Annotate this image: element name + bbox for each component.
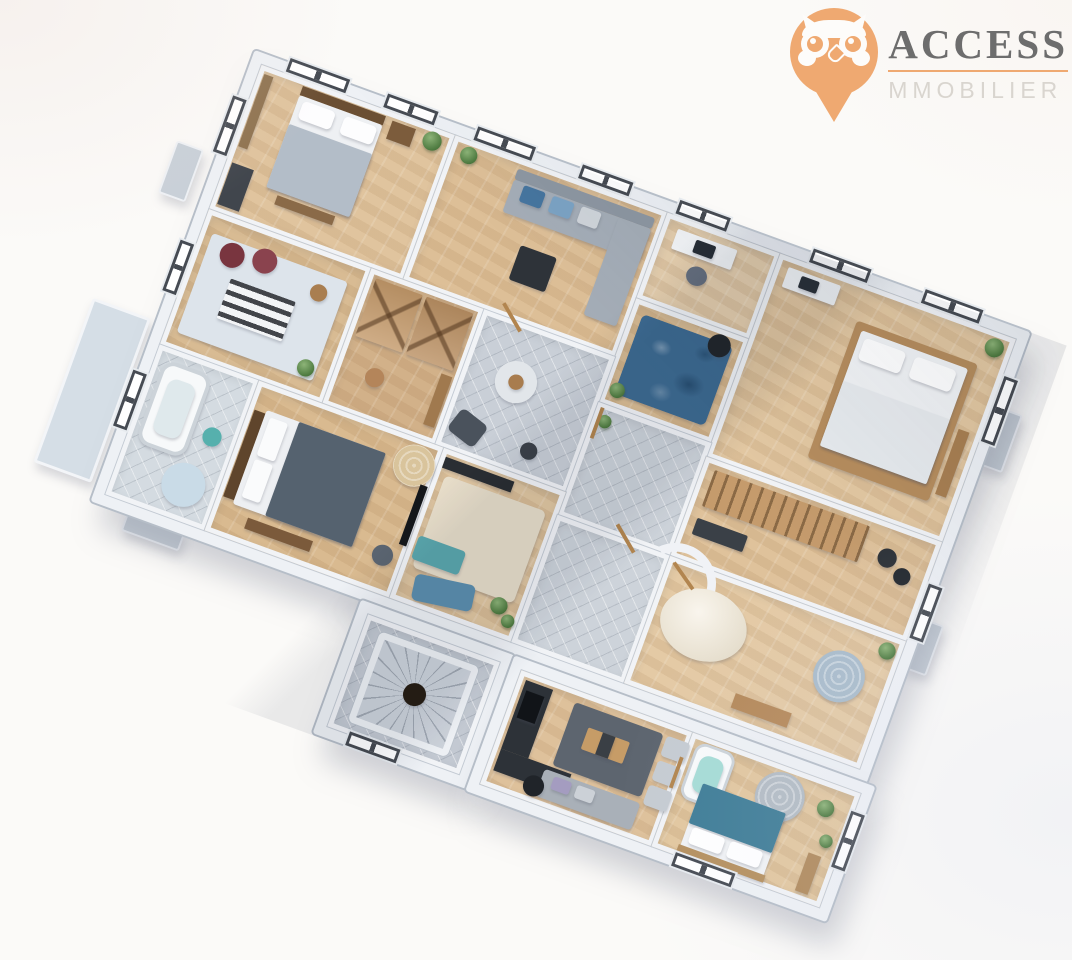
- logo: ACCESS MMOBILIER: [790, 8, 1068, 126]
- owl-icon: [800, 20, 868, 72]
- brand-subtitle: MMOBILIER: [888, 79, 1068, 102]
- balcony-block: [158, 140, 204, 202]
- owl-location-pin-icon: [790, 8, 878, 126]
- brand-divider: [888, 70, 1068, 72]
- page: { "branding": { "name": "ACCESS", "subti…: [0, 0, 1072, 960]
- brand-name: ACCESS: [888, 24, 1068, 65]
- brand-text-block: ACCESS MMOBILIER: [888, 24, 1068, 102]
- floor-plan-render: [41, 50, 1066, 932]
- pin-tail: [809, 80, 859, 122]
